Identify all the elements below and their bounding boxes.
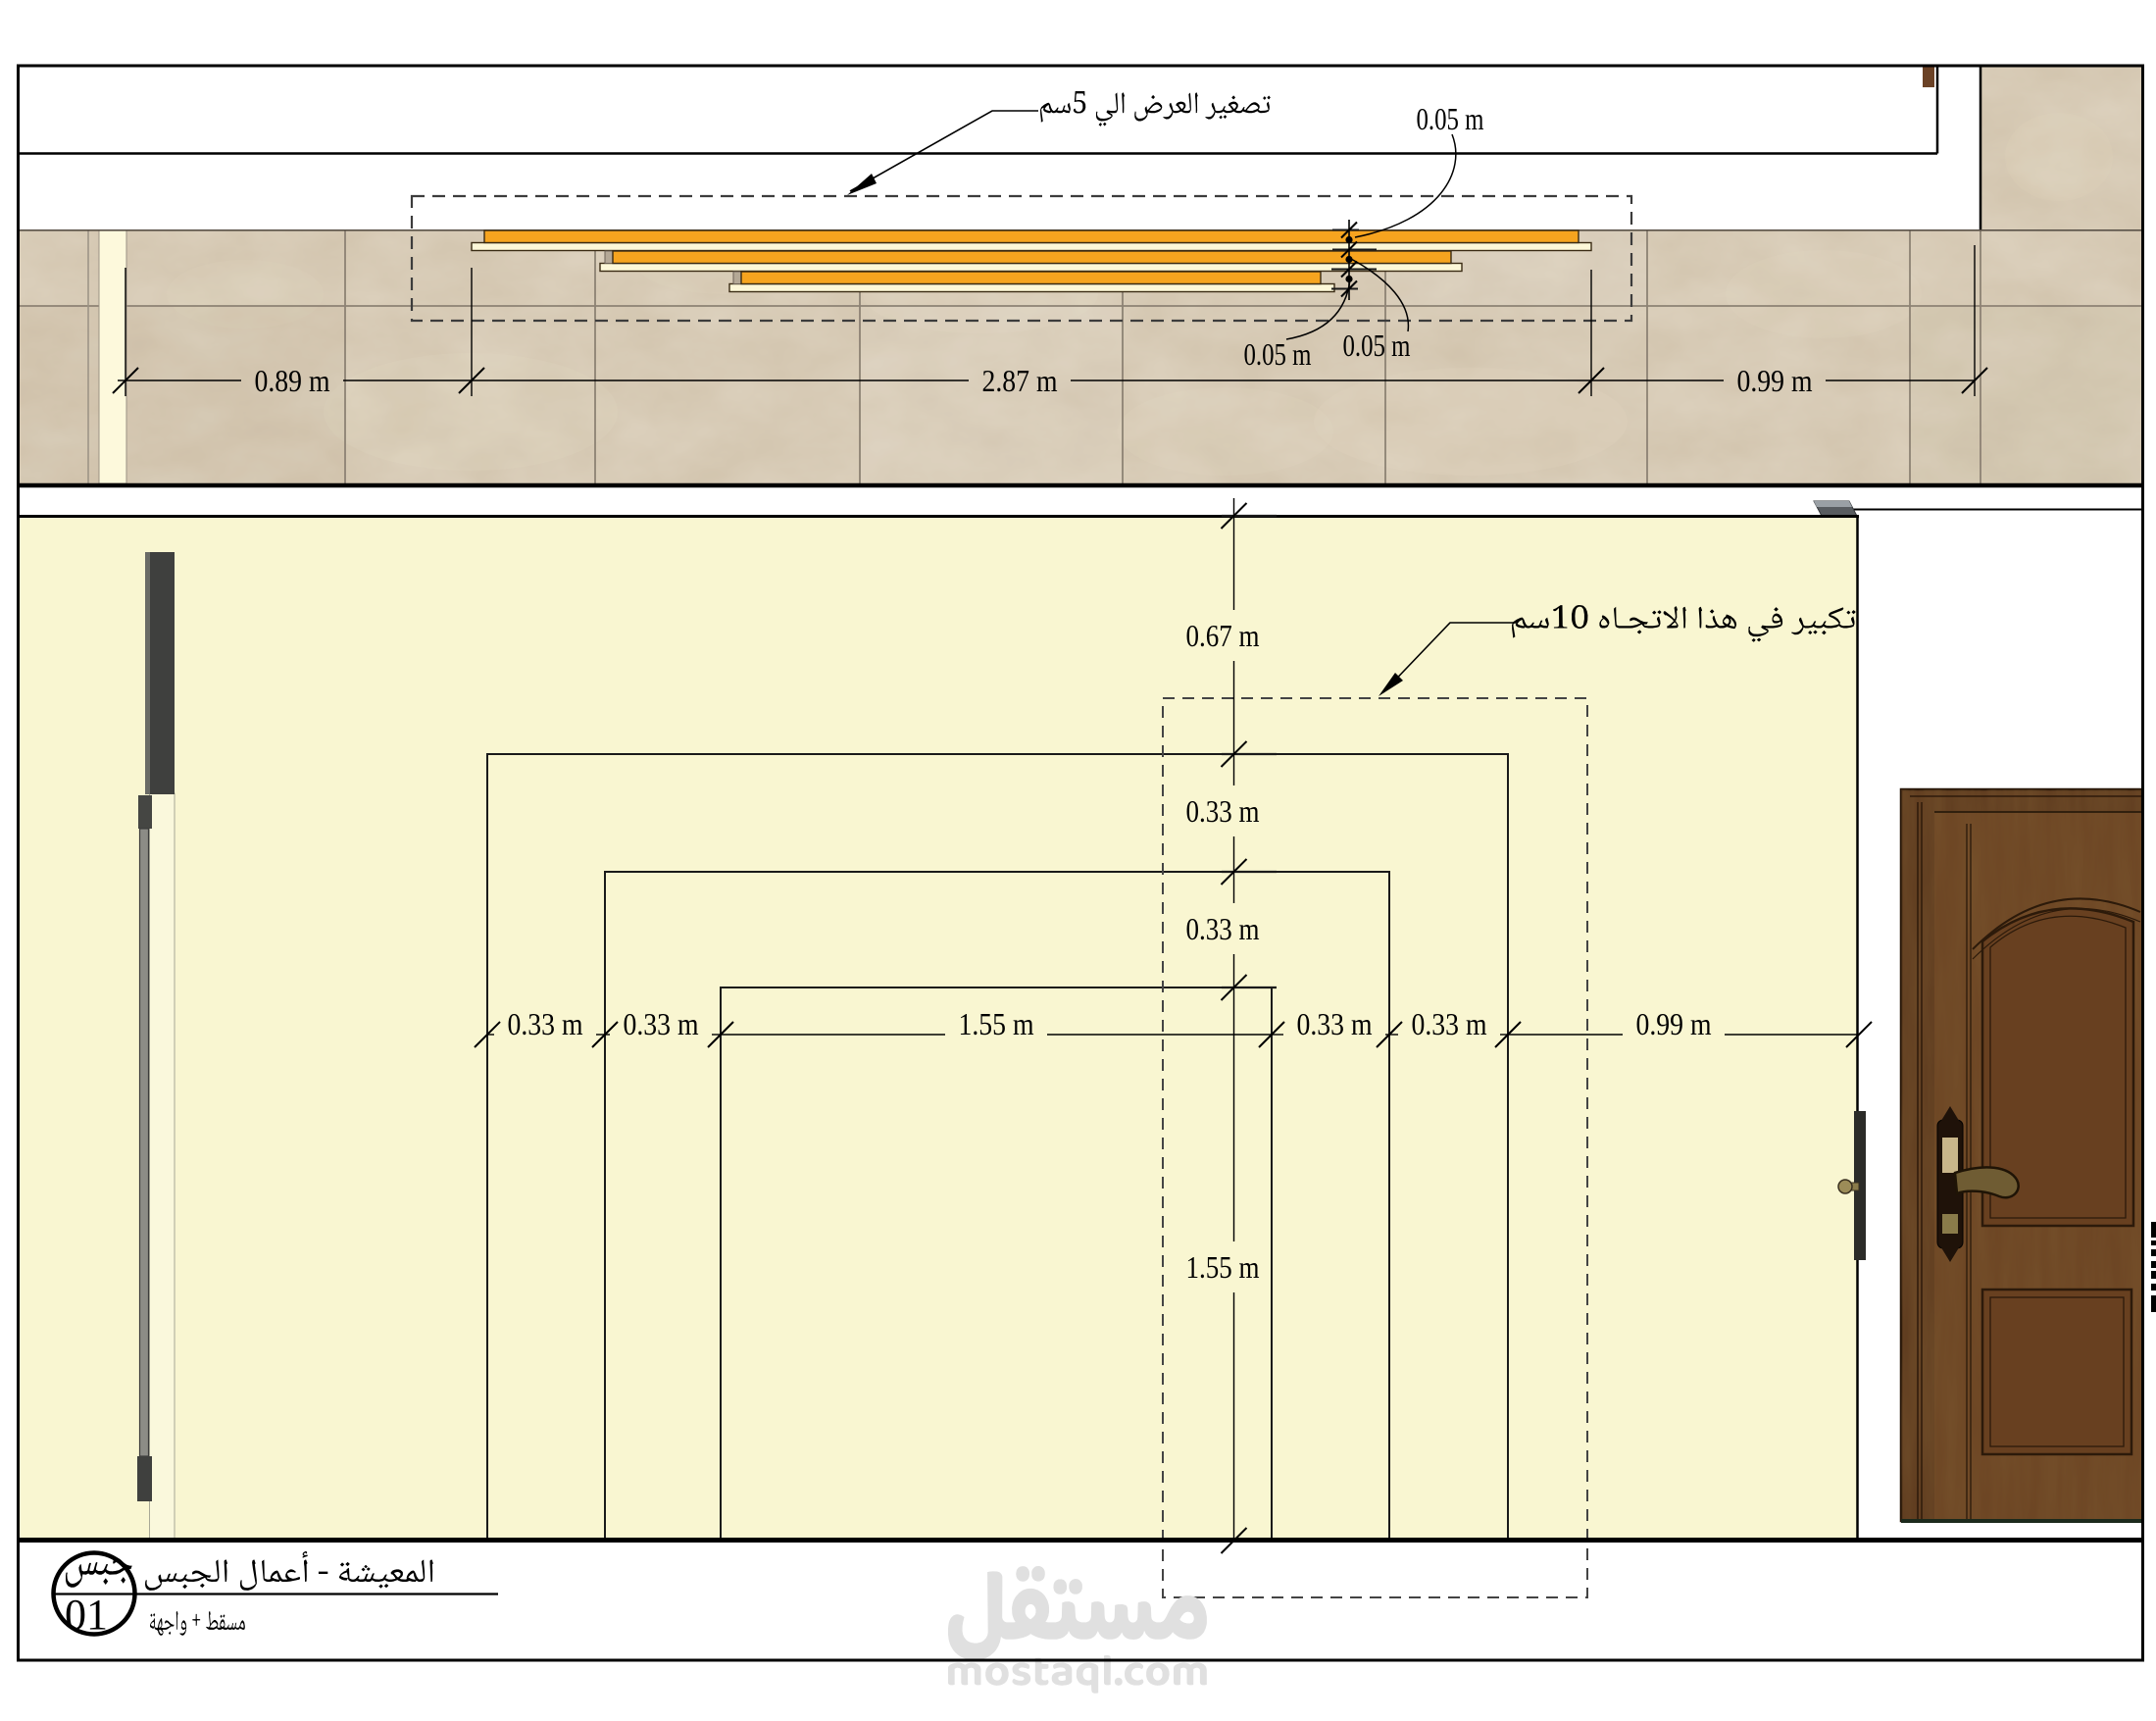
svg-text:0.99 m: 0.99 m [1737, 363, 1813, 398]
svg-text:0.99 m: 0.99 m [1636, 1006, 1712, 1041]
svg-text:1.55 m: 1.55 m [959, 1006, 1034, 1041]
svg-text:0.05 m: 0.05 m [1244, 336, 1312, 372]
svg-text:1.55 m: 1.55 m [1186, 1249, 1260, 1285]
svg-text:0.89 m: 0.89 m [255, 363, 330, 398]
svg-text:0.05 m: 0.05 m [1343, 328, 1411, 363]
svg-text:0.05 m: 0.05 m [1417, 101, 1484, 136]
svg-text:0.67 m: 0.67 m [1186, 618, 1260, 653]
svg-text:01: 01 [65, 1591, 108, 1639]
svg-text:0.33 m: 0.33 m [624, 1006, 699, 1041]
svg-text:0.33 m: 0.33 m [1297, 1006, 1373, 1041]
svg-text:2.87 m: 2.87 m [982, 363, 1058, 398]
svg-text:0.33 m: 0.33 m [1412, 1006, 1487, 1041]
svg-text:0.33 m: 0.33 m [1186, 793, 1260, 829]
svg-text:0.33 m: 0.33 m [508, 1006, 583, 1041]
svg-text:0.33 m: 0.33 m [1186, 911, 1260, 946]
